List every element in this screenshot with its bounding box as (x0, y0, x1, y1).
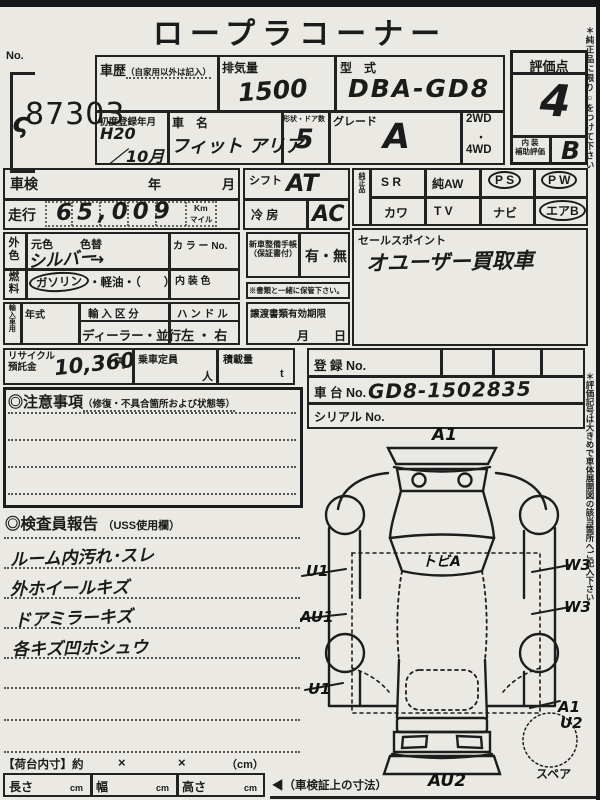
equip-ps: P S (488, 171, 521, 189)
transfer-month: 月 (297, 327, 309, 344)
rear-hatch (397, 718, 487, 732)
import-year-label: 年式 (25, 306, 45, 321)
sales-point-value: オユーザー買取車 (366, 245, 534, 278)
front-bumper (388, 448, 496, 491)
color-no-label: カ ラ ー No. (173, 237, 227, 252)
roof-outline (352, 553, 540, 713)
reg-no-label: 登 録 No. (314, 355, 366, 374)
height-label: 高さ (182, 778, 206, 795)
body-side-right (482, 571, 487, 660)
damage-windshield: トビA (422, 554, 461, 570)
shaken-year: 年 (148, 174, 161, 193)
displacement-label: 排気量 (222, 59, 258, 76)
equip-tv: T V (434, 204, 453, 218)
transfer-docs-label: 譲渡書類有効期限 (250, 306, 326, 320)
displacement-value: 1500 (237, 74, 308, 108)
car-name-label: 車 名 (172, 114, 208, 131)
scan-top-bar (0, 0, 600, 7)
damage-right-4: U2 (560, 714, 583, 732)
body-side-left (397, 571, 402, 660)
score-value: 4 (539, 75, 572, 128)
drive-dot: ・ (476, 129, 486, 144)
width-label: 幅 (96, 778, 108, 795)
page-title: ロープラコーナー (0, 9, 600, 53)
side-note-genuine: ＊純正品に限り○をつけて下さい (584, 26, 596, 366)
interior-score-label: 内 装 補助評価 (512, 139, 548, 156)
equip-pw: P W (541, 171, 577, 189)
rear-window (406, 670, 478, 710)
service-book-label: 新車整備手帳 （保証書付） (248, 240, 298, 258)
odometer-unit-mile: マイル (190, 214, 213, 225)
recycle-unit: 円 (114, 354, 126, 371)
odometer-unit-km: Km (194, 203, 208, 213)
auction-sheet: ロープラコーナー No. ς 87303 車歴（自家用以外は記入） 排気量 15… (0, 0, 600, 800)
load-unit: t (280, 368, 284, 380)
keep-note: ※書類と一緒に保管下さい。 (249, 286, 344, 296)
length-unit: cm (70, 783, 83, 793)
headlight-left (413, 474, 426, 487)
load-label: 積載量 (223, 351, 253, 366)
fuel-value: ガソリン・軽油・（ ） (29, 272, 175, 292)
wheel-front-right (520, 496, 558, 534)
scan-right-bar (596, 0, 600, 800)
bed-unit: （cm） (226, 756, 264, 772)
fuel-gasoline-circled: ガソリン (29, 270, 90, 293)
damage-left-1: U1 (306, 562, 329, 580)
color-change-value: → (90, 250, 104, 270)
wheel-rear-left (326, 634, 364, 672)
pax-label: 乗車定員 (138, 351, 178, 366)
import-class-value: ディーラー・並行 (82, 325, 181, 344)
right-side-panel (488, 473, 558, 706)
history-label: 車歴（自家用以外は記入） (100, 60, 211, 80)
handle-value: 左 ・ 右 (181, 325, 227, 344)
spare-label: スペア (536, 767, 571, 781)
lot-no-label: No. (6, 50, 24, 62)
inspector-line-2: 外ホイールキズ (10, 573, 129, 600)
width-unit: cm (156, 783, 169, 793)
shift-value: AT (286, 169, 319, 197)
equip-navi: ナビ (493, 204, 517, 221)
grade-label: グレード (333, 113, 377, 129)
bed-x1: × (118, 755, 126, 770)
damage-rear: AU2 (426, 771, 466, 791)
car-diagram: A1 トビA U1 AU1 U1 W3 W3 A1 U2 AU2 スペア (300, 418, 592, 796)
recycle-label: リサイクル 預託金 (8, 352, 55, 374)
shift-label: シフト (249, 172, 282, 188)
grade-value: A (383, 117, 410, 157)
car-name-value: フィット アリア (171, 132, 303, 158)
bed-dims-label: 【荷台内寸】約 (3, 756, 84, 772)
shape-doors-value: 5 (295, 124, 314, 155)
side-note-diagram: ＊評価記号は大きめで車体展開図の該当箇所へご記入下さい (584, 372, 596, 792)
damage-left-2: AU1 (300, 608, 334, 626)
rear-bumper (394, 732, 490, 752)
height-unit: cm (244, 783, 257, 793)
chassis-no-label: 車 台 No. (314, 382, 366, 401)
equip-airbag: エアB (539, 200, 586, 221)
equip-alloy: 純AW (432, 175, 463, 192)
mileage-value: 65,009 (56, 198, 175, 226)
pax-unit: 人 (202, 368, 213, 384)
caution-title: ◎注意事項（修復・不具合箇所および状態等） (8, 391, 235, 412)
drive-2wd: 2WD (466, 113, 492, 125)
service-book-value: 有・無 (305, 246, 347, 266)
hood-left-edge (390, 491, 401, 538)
inspector-line-4: 各キズ凹ホシュウ (12, 633, 148, 660)
damage-left-3: U1 (308, 680, 331, 698)
import-label: 輸入車用 (4, 304, 18, 332)
transfer-day: 日 (334, 327, 346, 344)
fuel-label: 燃料 (6, 271, 22, 295)
wheel-front-left (326, 496, 364, 534)
shape-doors-label: 形状・ドア数 (283, 114, 325, 124)
genuine-label: 純正品 (353, 172, 369, 193)
wheel-rear-right (520, 634, 558, 672)
damage-front: A1 (430, 425, 457, 445)
headlight-right (459, 474, 472, 487)
handle-label: ハ ン ド ル (177, 306, 228, 321)
model-code-value: DBA-GD8 (348, 74, 490, 103)
first-reg-value: H20 ／10月 (100, 124, 164, 167)
equip-sr: S R (381, 175, 401, 189)
ac-label: 冷 房 (251, 206, 278, 223)
interior-color-label: 内 装 色 (175, 272, 211, 287)
inspector-title: ◎検査員報告 （USS使用欄） (5, 512, 180, 534)
shaken-label: 車検 (10, 174, 38, 194)
ext-color-label: 外色 (6, 237, 22, 262)
hood-right-edge (483, 491, 494, 538)
rear-reflector-left (402, 736, 427, 748)
rear-reflector-right (457, 736, 482, 748)
chassis-no-value: GD8-1502835 (368, 377, 532, 404)
lwh-table (3, 773, 265, 797)
inspector-line-3: ドアミラーキズ (14, 602, 133, 631)
ac-value: AC (312, 202, 345, 227)
length-label: 長さ (9, 778, 33, 795)
import-class-label: 輸 入 区 分 (88, 306, 139, 321)
mileage-label: 走行 (8, 205, 36, 225)
bed-x2: × (178, 755, 186, 770)
drive-4wd: 4WD (466, 144, 492, 156)
shaken-month: 月 (222, 174, 235, 193)
inspector-line-1: ルーム内汚れ･スレ (10, 540, 155, 570)
equip-leather: カワ (384, 204, 408, 221)
score-label: 評価点 (510, 56, 588, 75)
interior-score-value: B (561, 136, 580, 165)
